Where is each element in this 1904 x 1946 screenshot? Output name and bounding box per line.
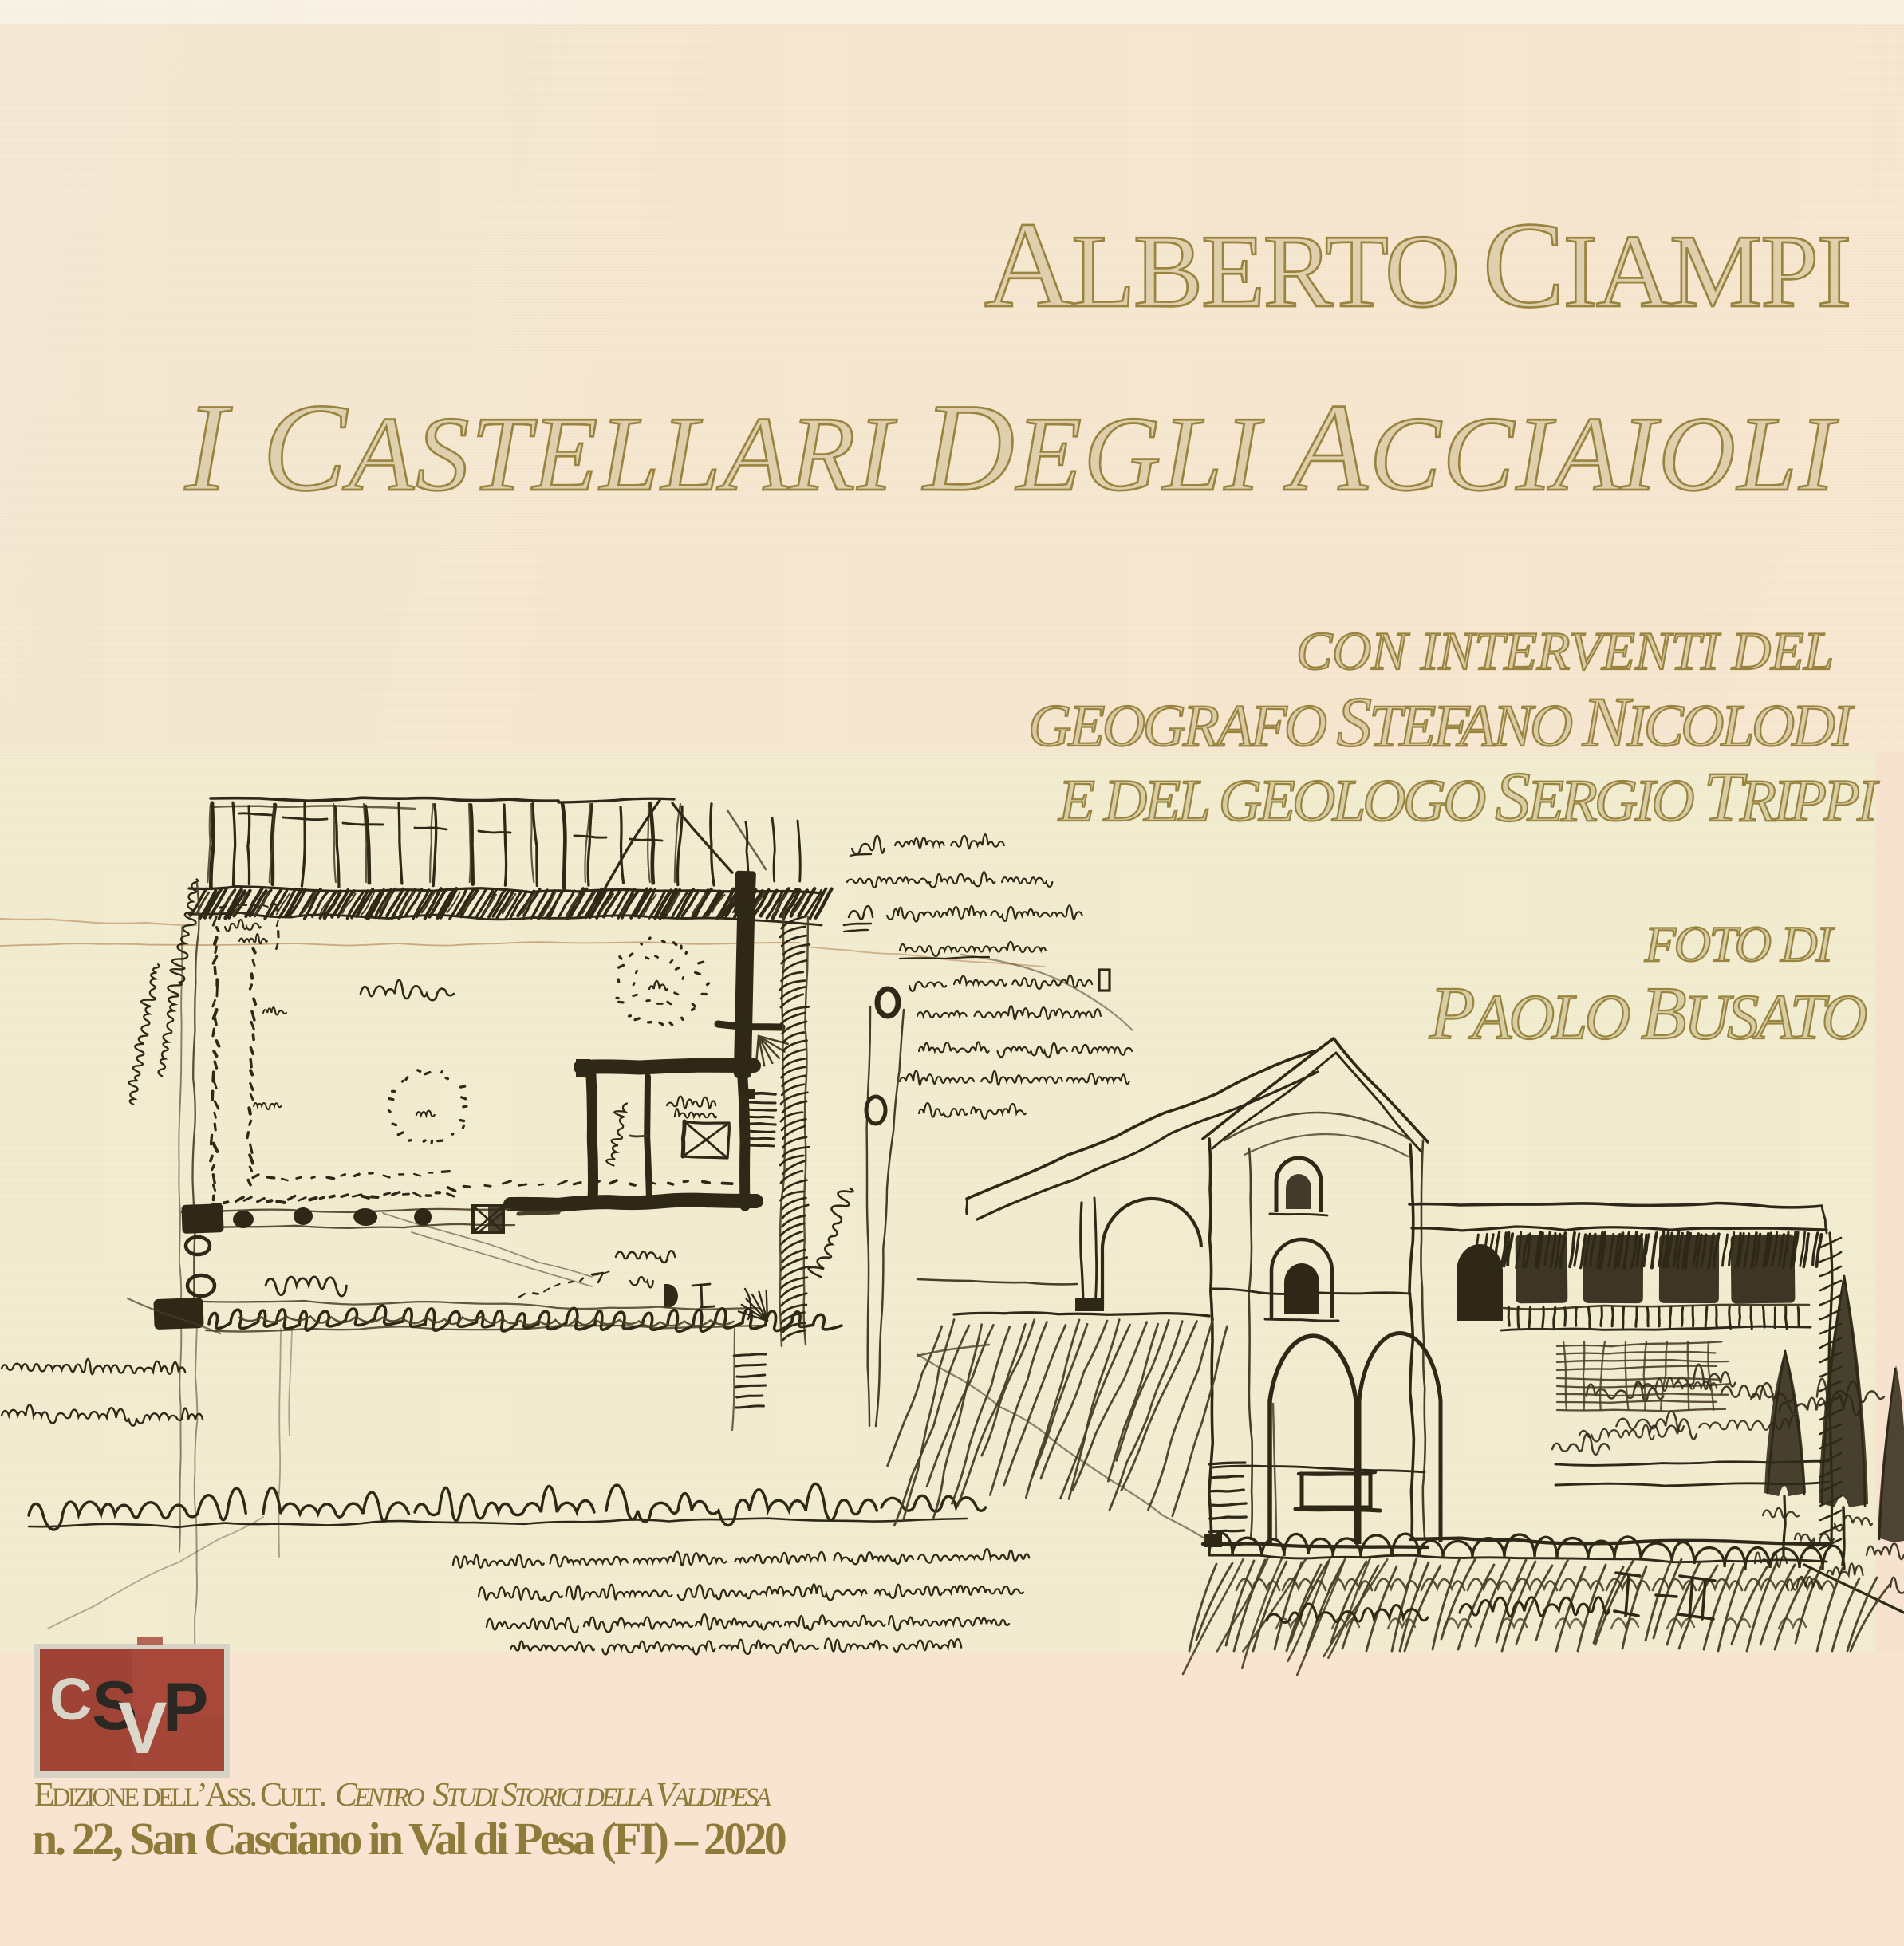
svg-text:V: V: [118, 1688, 167, 1769]
svg-text:P: P: [163, 1669, 208, 1746]
svg-text:C: C: [49, 1666, 92, 1732]
